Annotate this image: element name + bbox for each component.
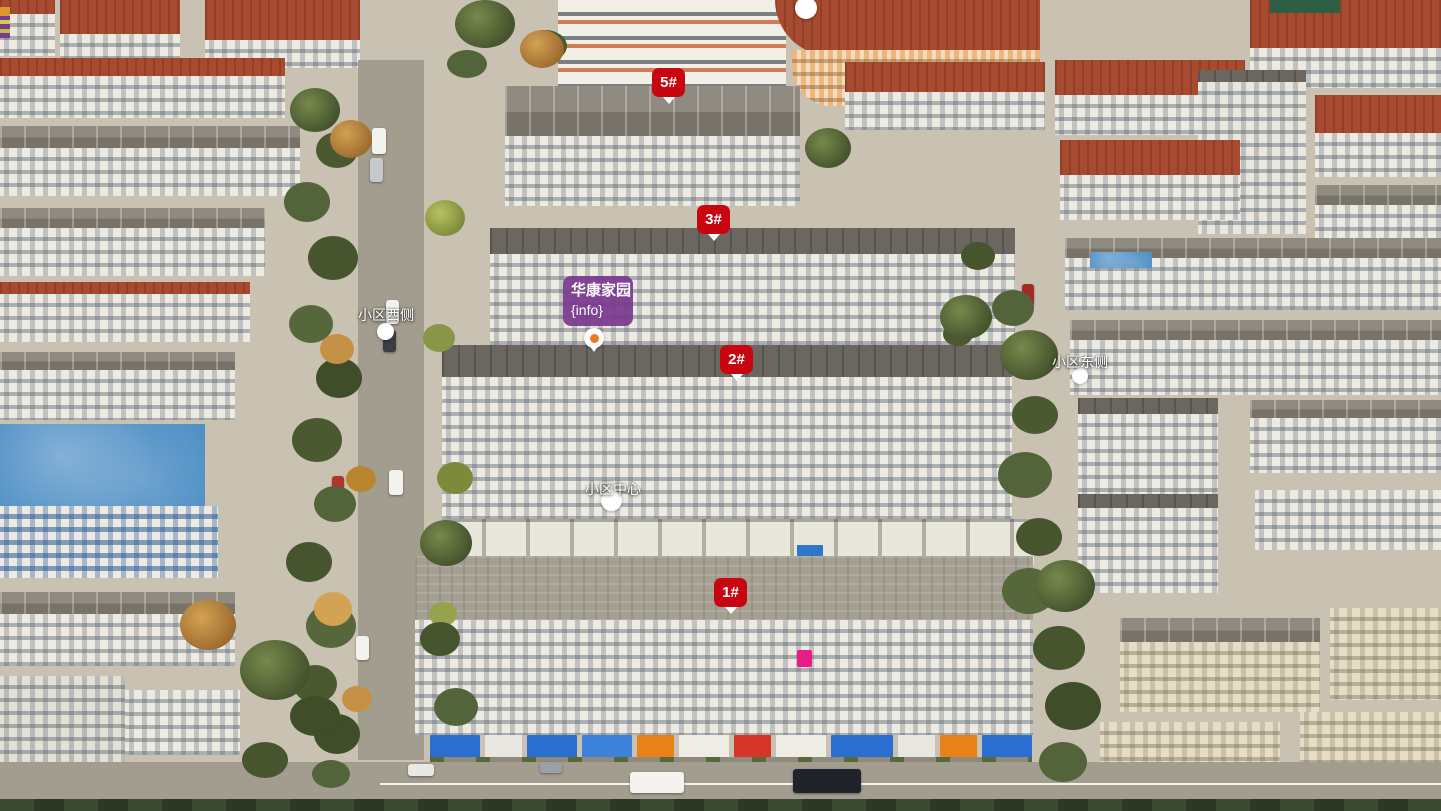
building — [1078, 508, 1218, 593]
building — [1250, 418, 1441, 473]
roof — [1060, 140, 1240, 175]
green-roof — [1270, 0, 1340, 13]
building-badge-label: 5# — [660, 74, 677, 91]
blue-tarp-roof — [0, 424, 205, 506]
area-label-center[interactable]: 小区中心 — [585, 479, 641, 499]
tree-cluster — [290, 88, 340, 132]
tree-cluster — [1000, 330, 1058, 380]
roof — [1078, 398, 1218, 414]
car — [793, 769, 861, 793]
car — [370, 158, 383, 182]
road-line — [380, 783, 1441, 785]
building — [1255, 490, 1441, 550]
tree-cluster — [240, 640, 310, 700]
roof — [1315, 95, 1441, 133]
building — [0, 76, 285, 118]
pink-awning — [797, 650, 812, 667]
building — [1330, 608, 1441, 700]
clipped-marker-fragment — [0, 7, 10, 38]
building-1 — [415, 620, 1033, 735]
building — [1315, 133, 1441, 177]
community-name-label[interactable]: 华康家园 {info} — [563, 276, 633, 326]
area-label-east[interactable]: 小区东侧 — [1052, 352, 1108, 372]
building-badge-5[interactable]: 5# — [652, 68, 685, 97]
roof — [0, 282, 250, 294]
building — [845, 92, 1045, 130]
roof — [1070, 320, 1441, 340]
tree-cluster-autumn — [330, 120, 372, 158]
car — [408, 764, 434, 776]
blue-canopy — [797, 545, 823, 556]
car — [1022, 284, 1034, 306]
building — [1060, 175, 1240, 220]
building — [125, 690, 240, 755]
roof — [0, 208, 265, 228]
tree-cluster — [805, 128, 851, 168]
tree-cluster — [1035, 560, 1095, 612]
car — [372, 128, 386, 154]
tree-cluster — [425, 200, 465, 236]
community-pin-icon[interactable] — [584, 328, 604, 348]
tree-cluster — [455, 0, 515, 48]
building — [0, 506, 218, 578]
building-badge-label: 3# — [705, 211, 722, 228]
building — [0, 148, 300, 196]
roof — [1120, 618, 1320, 642]
area-dot-west[interactable] — [377, 323, 394, 340]
roof — [1250, 400, 1441, 418]
tree-cluster-autumn — [180, 600, 236, 650]
building — [60, 34, 180, 60]
roof — [845, 62, 1045, 92]
building-badge-label: 1# — [722, 584, 739, 601]
building-badge-label: 2# — [728, 351, 745, 368]
area-label-west[interactable]: 小区西侧 — [358, 305, 414, 325]
roof — [1198, 70, 1306, 82]
blue-tarp-roof — [1090, 252, 1152, 268]
building — [0, 370, 235, 420]
car — [389, 470, 403, 495]
building-badge-1[interactable]: 1# — [714, 578, 747, 607]
roof — [1315, 185, 1441, 205]
building — [1120, 642, 1320, 712]
building — [0, 294, 250, 342]
building-5 — [505, 136, 800, 206]
building-badge-2[interactable]: 2# — [720, 345, 753, 374]
roof — [1078, 494, 1218, 508]
roof — [0, 352, 235, 370]
building — [0, 228, 265, 276]
community-info-placeholder: {info} — [571, 301, 625, 320]
aerial-map-view: 5# 3# 2# 1# 华康家园 {info} 小区西侧 小区东侧 小区中心 — [0, 0, 1441, 811]
tree-cluster — [420, 520, 472, 566]
roof — [0, 126, 300, 148]
car — [356, 636, 369, 660]
tree-cluster-autumn — [520, 30, 564, 68]
community-name: 华康家园 — [571, 281, 625, 301]
vegetation-edge — [0, 799, 1441, 811]
building — [1070, 340, 1441, 395]
car — [630, 772, 684, 793]
building-2 — [442, 377, 1012, 519]
tree-cluster — [940, 295, 992, 339]
roof — [0, 58, 285, 76]
car — [332, 476, 344, 498]
building-badge-3[interactable]: 3# — [697, 205, 730, 234]
roof — [205, 0, 360, 40]
roof — [60, 0, 180, 34]
roof — [490, 228, 1015, 254]
building — [1078, 414, 1218, 494]
car — [540, 762, 562, 773]
